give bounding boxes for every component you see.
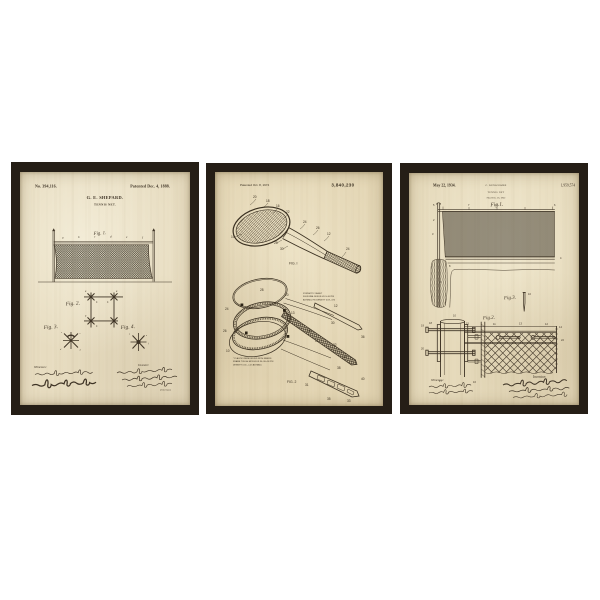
svg-text:1,959,574: 1,959,574 xyxy=(561,184,576,189)
svg-text:Fig.2.: Fig.2. xyxy=(482,316,495,322)
svg-text:20: 20 xyxy=(253,195,257,199)
svg-text:14: 14 xyxy=(559,325,562,329)
svg-text:12: 12 xyxy=(327,232,331,236)
svg-text:Fig.3.: Fig.3. xyxy=(503,296,516,302)
svg-text:d: d xyxy=(80,349,82,352)
svg-text:26: 26 xyxy=(223,329,227,333)
svg-text:6: 6 xyxy=(554,203,556,207)
svg-text:5: 5 xyxy=(433,203,435,207)
svg-text:15: 15 xyxy=(466,322,469,326)
svg-text:FLEXURAL MODULUS 3×10⁵PSI: FLEXURAL MODULUS 3×10⁵PSI xyxy=(303,295,335,298)
svg-text:c: c xyxy=(61,331,63,334)
svg-text:a: a xyxy=(116,290,118,293)
svg-text:ASTM(D) 790 DENSITY 0.69–.675: ASTM(D) 790 DENSITY 0.69–.675 xyxy=(303,298,336,301)
svg-text:10: 10 xyxy=(453,314,456,318)
svg-text:b: b xyxy=(78,235,80,239)
svg-text:24: 24 xyxy=(225,307,229,311)
svg-text:20: 20 xyxy=(285,293,289,297)
svg-text:24: 24 xyxy=(346,247,350,251)
svg-text:12: 12 xyxy=(545,322,548,326)
svg-text:Filed Feb. 16, 1932: Filed Feb. 16, 1932 xyxy=(487,197,506,200)
svg-text:No. 394,116.: No. 394,116. xyxy=(35,184,57,189)
svg-text:28: 28 xyxy=(260,288,264,292)
svg-text:19: 19 xyxy=(421,324,424,328)
svg-text:Fig. 3.: Fig. 3. xyxy=(43,324,59,331)
svg-text:e: e xyxy=(146,334,147,337)
svg-text:Inventor:: Inventor: xyxy=(532,375,546,379)
svg-text:34: 34 xyxy=(343,355,347,359)
svg-text:18: 18 xyxy=(307,329,311,333)
svg-text:12: 12 xyxy=(334,304,338,308)
svg-text:33: 33 xyxy=(347,399,351,403)
svg-text:2: 2 xyxy=(433,218,435,222)
svg-text:Witnesses:: Witnesses: xyxy=(34,365,47,369)
svg-text:b: b xyxy=(96,325,98,328)
svg-text:38: 38 xyxy=(337,366,341,370)
svg-text:FIG. 2: FIG. 2 xyxy=(287,380,297,384)
svg-text:e: e xyxy=(129,333,130,336)
svg-text:24: 24 xyxy=(303,220,307,224)
svg-text:c: c xyxy=(80,332,82,335)
svg-text:10: 10 xyxy=(528,292,531,296)
svg-text:22: 22 xyxy=(561,338,564,342)
svg-text:f: f xyxy=(148,342,149,345)
svg-text:11: 11 xyxy=(493,322,496,326)
svg-text:17: 17 xyxy=(315,339,319,343)
svg-text:7: 7 xyxy=(468,203,470,207)
svg-text:SYNTACTIC SHEET: SYNTACTIC SHEET xyxy=(303,292,323,295)
svg-text:DENSITY 0.55 –1.25 ASTM(D): DENSITY 0.55 –1.25 ASTM(D) xyxy=(233,363,262,366)
svg-text:32: 32 xyxy=(333,343,337,347)
svg-text:TENNIS NET.: TENNIS NET. xyxy=(94,203,116,207)
svg-text:d: d xyxy=(110,235,112,239)
svg-text:30: 30 xyxy=(331,321,335,325)
svg-text:e: e xyxy=(126,235,128,239)
svg-text:(Attorneys): (Attorneys) xyxy=(160,389,171,392)
svg-text:f: f xyxy=(142,236,144,240)
svg-text:* PLASTIC REINFORCED WITH FIBE: * PLASTIC REINFORCED WITH FIBERS xyxy=(233,357,272,360)
svg-text:13: 13 xyxy=(291,311,295,315)
svg-text:22: 22 xyxy=(286,210,290,214)
svg-text:10: 10 xyxy=(231,235,235,239)
svg-text:a: a xyxy=(85,290,87,293)
svg-text:35: 35 xyxy=(327,397,331,401)
svg-text:26: 26 xyxy=(316,226,320,230)
svg-text:Fig. 4.: Fig. 4. xyxy=(120,324,136,331)
svg-text:18: 18 xyxy=(266,199,270,203)
svg-text:Witnesses:: Witnesses: xyxy=(431,378,444,382)
svg-text:40: 40 xyxy=(361,377,365,381)
svg-text:C. DUNSCOMBE: C. DUNSCOMBE xyxy=(485,184,506,187)
svg-text:May 22, 1934.: May 22, 1934. xyxy=(433,184,456,188)
svg-text:a: a xyxy=(62,236,64,240)
svg-text:d: d xyxy=(60,348,62,351)
svg-text:Patented Dec. 4, 1888.: Patented Dec. 4, 1888. xyxy=(130,184,170,189)
svg-text:20: 20 xyxy=(421,347,424,351)
svg-text:3,840,230: 3,840,230 xyxy=(331,183,354,188)
svg-text:a: a xyxy=(85,315,87,318)
svg-text:13: 13 xyxy=(519,322,522,326)
svg-text:TENNIS NET: TENNIS NET xyxy=(488,191,505,194)
svg-text:10: 10 xyxy=(226,349,230,353)
svg-text:8: 8 xyxy=(449,264,451,268)
svg-text:G. E. SHEPARD.: G. E. SHEPARD. xyxy=(87,195,124,200)
svg-text:b: b xyxy=(96,301,98,304)
svg-text:31: 31 xyxy=(305,383,309,387)
svg-text:36: 36 xyxy=(361,335,365,339)
svg-text:16: 16 xyxy=(473,380,476,384)
svg-text:16: 16 xyxy=(276,204,280,208)
svg-text:3: 3 xyxy=(432,232,434,236)
svg-text:Inventor:: Inventor: xyxy=(137,363,149,367)
svg-text:18: 18 xyxy=(429,321,432,325)
svg-text:4: 4 xyxy=(560,256,562,260)
svg-text:Fig. 2.: Fig. 2. xyxy=(65,301,81,308)
svg-text:Patented Oct. 8, 1974: Patented Oct. 8, 1974 xyxy=(240,183,270,187)
svg-text:b: b xyxy=(107,301,109,304)
svg-text:FIG. I: FIG. I xyxy=(289,262,298,266)
svg-text:FRAME TOUGH MODULUS 30–36×10⁵P: FRAME TOUGH MODULUS 30–36×10⁵PSI xyxy=(233,360,274,363)
